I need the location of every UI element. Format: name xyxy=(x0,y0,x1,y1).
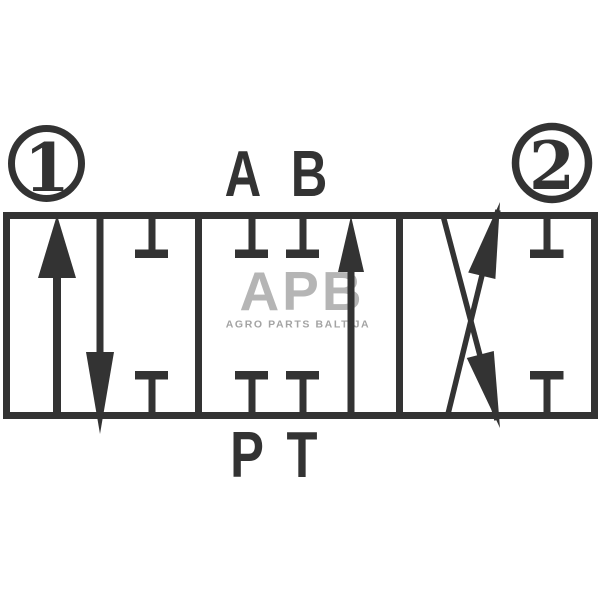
hydraulic-valve-schematic: APB AGRO PARTS BALTIJA xyxy=(0,0,600,600)
position-2-number: 2 xyxy=(529,127,575,205)
blocked-port-top-stem xyxy=(544,214,551,252)
port-t-blocked-stem xyxy=(300,377,307,415)
port-a-blocked-bar xyxy=(235,250,268,259)
up-arrow-shaft xyxy=(53,272,61,415)
port-t-label: T xyxy=(287,419,318,491)
up-arrow-head xyxy=(38,215,76,278)
down-arrow-head xyxy=(86,352,114,434)
position-1-symbols xyxy=(38,215,168,434)
blocked-port-top-bar xyxy=(530,250,564,259)
blocked-port-bottom-stem xyxy=(149,377,156,415)
port-b-blocked-bar xyxy=(286,250,319,259)
bypass-arrow-shaft xyxy=(348,266,355,415)
valve-schematic-page: APB AGRO PARTS BALTIJA xyxy=(0,0,600,600)
port-a-label: A xyxy=(225,138,262,210)
down-arrow-shaft xyxy=(97,216,104,358)
bypass-arrow-head xyxy=(338,216,364,272)
port-p-blocked-stem xyxy=(249,377,256,415)
port-a-blocked-stem xyxy=(249,216,256,252)
port-p-label: P xyxy=(230,419,264,491)
position-1-number: 1 xyxy=(24,129,70,207)
blocked-port-bottom-stem xyxy=(544,377,551,415)
position-2-symbols xyxy=(443,202,564,428)
port-b-label: B xyxy=(291,138,328,210)
blocked-port-top-bar xyxy=(135,250,168,259)
port-b-blocked-stem xyxy=(300,216,307,252)
blocked-port-top-stem xyxy=(149,216,156,252)
